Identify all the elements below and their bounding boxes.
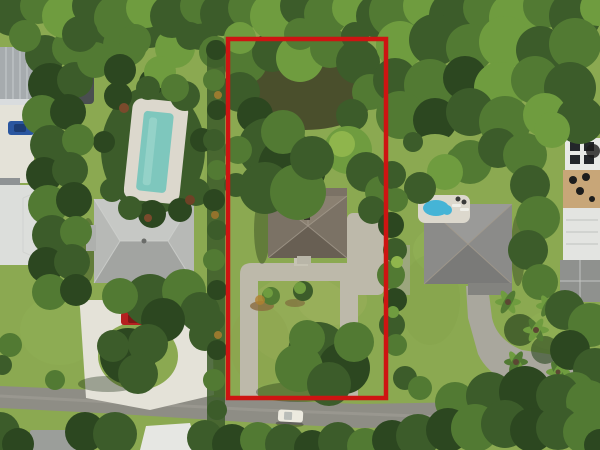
- aerial-scene: [0, 0, 600, 450]
- far-right-buildings: [560, 138, 600, 302]
- aerial-photo: [0, 0, 600, 450]
